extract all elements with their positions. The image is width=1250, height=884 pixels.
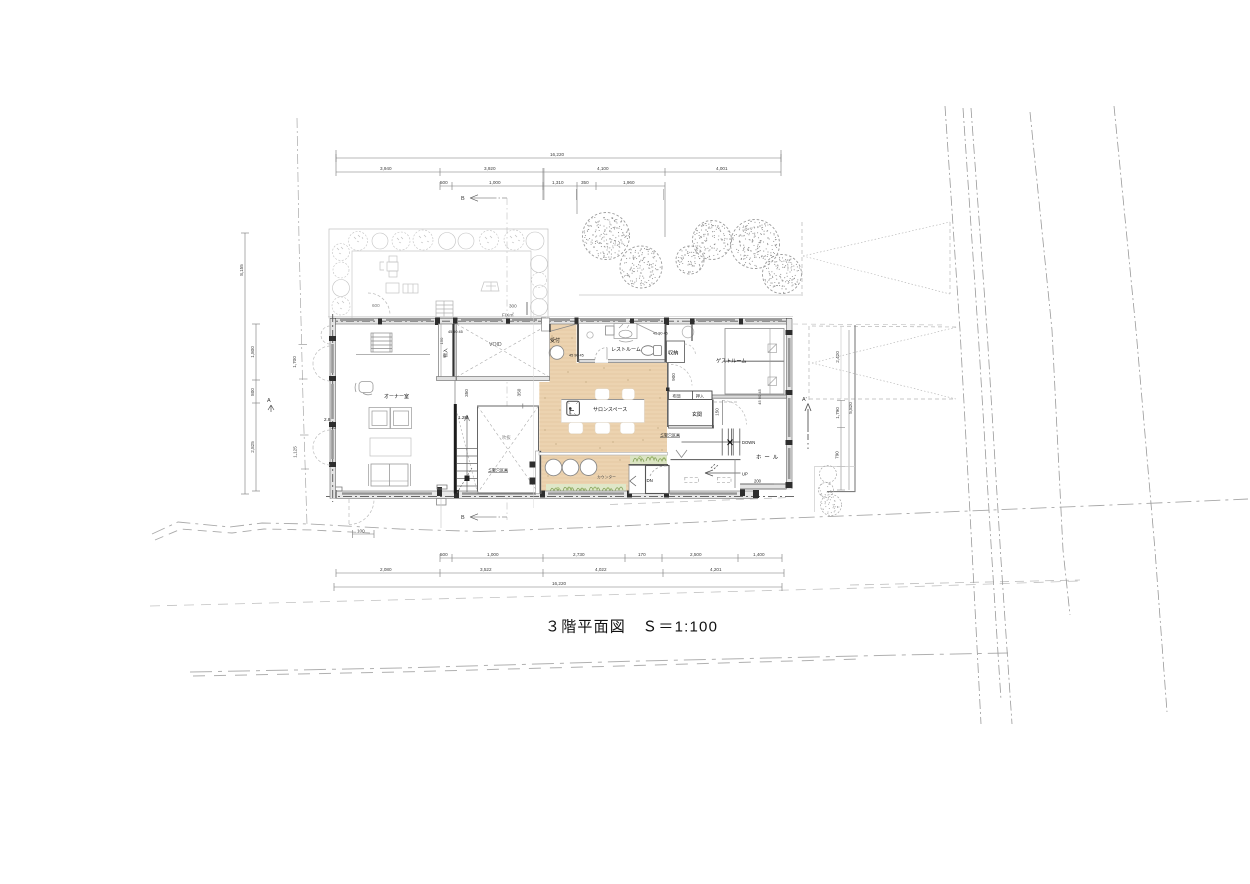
svg-text:1,790: 1,790 xyxy=(835,407,840,419)
svg-text:サロンスペース: サロンスペース xyxy=(593,407,627,413)
svg-text:1.2M: 1.2M xyxy=(458,415,468,420)
svg-text:3,522: 3,522 xyxy=(480,567,492,572)
svg-text:10: 10 xyxy=(331,425,337,430)
svg-text:2.8: 2.8 xyxy=(324,417,331,422)
svg-text:1,800: 1,800 xyxy=(250,346,255,358)
svg-text:790: 790 xyxy=(835,451,840,459)
svg-text:350: 350 xyxy=(464,389,469,397)
svg-text:900: 900 xyxy=(671,373,676,381)
svg-text:4,100: 4,100 xyxy=(597,166,609,171)
svg-text:3,920: 3,920 xyxy=(484,166,496,171)
svg-text:玄関: 玄関 xyxy=(692,411,702,418)
svg-text:45 90 45: 45 90 45 xyxy=(757,388,762,404)
svg-text:2,500: 2,500 xyxy=(690,552,702,557)
svg-text:170: 170 xyxy=(638,552,646,557)
svg-text:16,220: 16,220 xyxy=(552,581,566,586)
svg-text:1,960: 1,960 xyxy=(623,180,635,185)
svg-text:500: 500 xyxy=(440,552,448,557)
svg-text:1,000: 1,000 xyxy=(487,552,499,557)
svg-text:150: 150 xyxy=(439,337,444,344)
svg-text:≦竪穴区画: ≦竪穴区画 xyxy=(660,432,680,438)
svg-text:2,080: 2,080 xyxy=(380,567,392,572)
svg-text:45 90 45: 45 90 45 xyxy=(653,332,668,336)
svg-text:2,730: 2,730 xyxy=(573,552,585,557)
svg-text:3,940: 3,940 xyxy=(380,166,392,171)
svg-text:VOID: VOID xyxy=(489,342,502,348)
svg-text:16,220: 16,220 xyxy=(550,152,564,157)
svg-text:DOWN: DOWN xyxy=(742,440,755,445)
svg-text:2,420: 2,420 xyxy=(835,351,840,363)
svg-text:500: 500 xyxy=(440,180,448,185)
svg-text:350: 350 xyxy=(517,388,522,396)
svg-text:4,022: 4,022 xyxy=(595,567,607,572)
svg-text:1,310: 1,310 xyxy=(552,180,564,185)
svg-text:A: A xyxy=(267,398,271,404)
svg-text:300: 300 xyxy=(509,304,517,309)
svg-text:1,400: 1,400 xyxy=(753,552,765,557)
svg-text:オーナー室: オーナー室 xyxy=(384,393,409,400)
svg-text:B: B xyxy=(461,515,465,521)
svg-text:カウンター: カウンター xyxy=(597,475,616,480)
svg-text:800: 800 xyxy=(250,388,255,396)
svg-text:収納: 収納 xyxy=(668,349,678,357)
svg-text:45 90 45: 45 90 45 xyxy=(569,354,584,358)
svg-text:2,825: 2,825 xyxy=(250,441,255,453)
svg-text:ゲストルーム: ゲストルーム xyxy=(716,358,746,365)
svg-text:A': A' xyxy=(802,397,807,403)
svg-text:受付: 受付 xyxy=(550,337,560,344)
svg-text:レストルーム: レストルーム xyxy=(611,347,641,353)
svg-text:DN: DN xyxy=(647,478,653,483)
svg-text:1,000: 1,000 xyxy=(489,180,501,185)
svg-text:物入: 物入 xyxy=(442,348,449,358)
svg-text:200: 200 xyxy=(754,479,762,484)
svg-text:100: 100 xyxy=(357,529,365,534)
svg-text:３階平面図 Ｓ＝1:100: ３階平面図 Ｓ＝1:100 xyxy=(545,619,718,636)
svg-text:350: 350 xyxy=(581,180,589,185)
svg-text:5,820: 5,820 xyxy=(848,402,853,414)
svg-text:≦竪穴区画: ≦竪穴区画 xyxy=(488,467,508,473)
svg-text:8,155: 8,155 xyxy=(239,264,244,276)
svg-text:4,201: 4,201 xyxy=(710,567,722,572)
svg-text:吹抜: 吹抜 xyxy=(502,434,511,441)
svg-text:45 90 45: 45 90 45 xyxy=(448,330,463,334)
svg-text:ホール: ホール xyxy=(756,454,781,461)
svg-text:B: B xyxy=(461,196,465,202)
svg-text:押入: 押入 xyxy=(696,393,704,399)
svg-text:600: 600 xyxy=(372,303,380,308)
svg-text:UP: UP xyxy=(742,471,748,476)
svg-text:4,001: 4,001 xyxy=(716,166,728,171)
svg-text:1,125: 1,125 xyxy=(293,446,298,458)
svg-text:150: 150 xyxy=(715,408,720,416)
svg-text:布団: 布団 xyxy=(673,393,681,399)
svg-text:1,700: 1,700 xyxy=(292,356,297,368)
